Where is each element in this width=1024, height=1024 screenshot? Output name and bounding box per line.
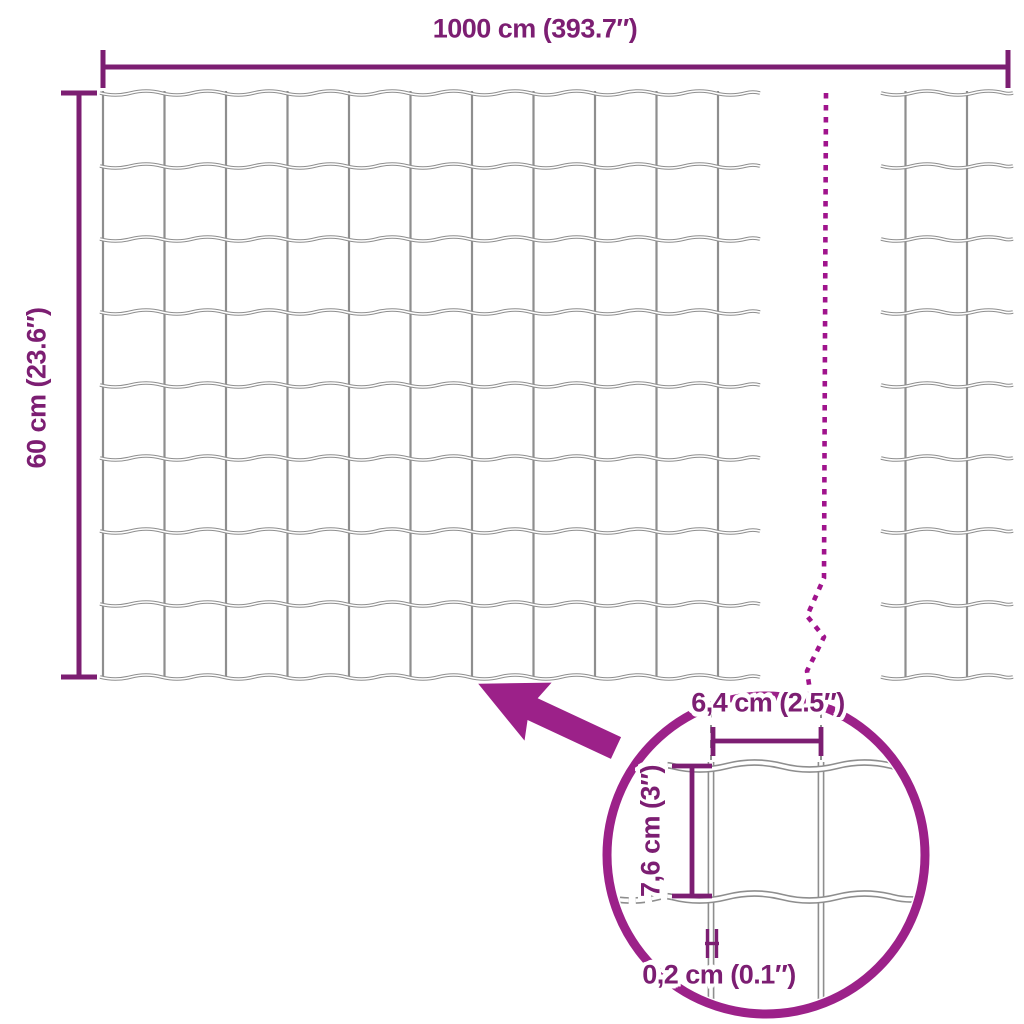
- detail-mesh-width-label: 6,4 cm (2.5″): [691, 690, 845, 717]
- mesh-grid-main: [100, 91, 760, 679]
- width-dimension-label: 1000 cm (393.7″): [433, 16, 638, 43]
- zoom-arrow-icon: [465, 655, 630, 777]
- product-dimension-diagram: 1000 cm (393.7″) 60 cm (23.6″) 6,4 cm (2…: [0, 0, 1024, 1024]
- width-dimension-line: [103, 50, 1008, 88]
- height-dimension-line: [61, 93, 97, 677]
- height-dimension-label: 60 cm (23.6″): [24, 307, 51, 468]
- detail-mesh-height-label: 7,6 cm (3″): [638, 765, 665, 897]
- mesh-grid-right: [881, 91, 1013, 679]
- fence-mesh-drawing: [0, 0, 1024, 1024]
- detail-wire-thickness-label: 0,2 cm (0.1″): [642, 962, 796, 989]
- break-dashed-line: [807, 93, 826, 697]
